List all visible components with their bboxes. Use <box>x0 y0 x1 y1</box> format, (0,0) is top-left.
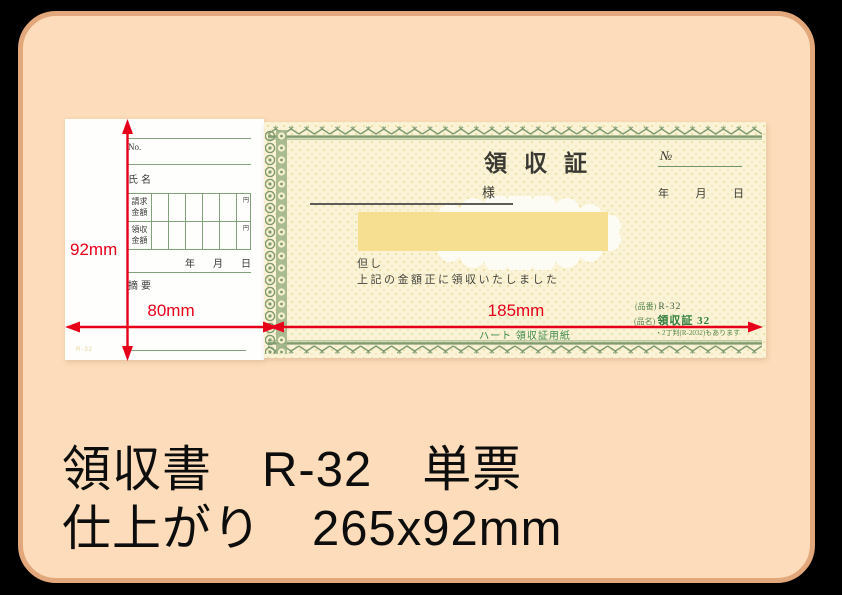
body-width-dimension-label: 185mm <box>476 301 556 321</box>
stub-date-row: 年 月 日 <box>185 255 251 270</box>
yen-unit: 円 <box>243 195 249 204</box>
received-amount-row: 領収金額 円 <box>128 221 250 249</box>
ornamental-top-border <box>268 126 762 141</box>
month-label: 月 <box>213 255 223 270</box>
receipt-statement: 上記の金額正に領収いたしました <box>357 271 560 287</box>
day-label: 日 <box>241 255 251 270</box>
year-label: 年 <box>658 185 669 201</box>
caption-line-2: 仕上がり 265x92mm <box>62 500 562 559</box>
receipt-date-row: 年 月 日 <box>658 185 744 201</box>
product-number: R-32 <box>658 302 681 312</box>
stub-no-label: No. <box>128 142 141 152</box>
stub-rule-top <box>127 138 251 139</box>
amount-table: 請求金額 円 領収金額 円 <box>127 193 251 250</box>
product-note: ・2丁判(R-2032)もあります <box>655 328 740 338</box>
year-label: 年 <box>185 255 195 270</box>
caption-line-1: 領収書 R-32 単票 <box>62 441 562 500</box>
billed-amount-label: 請求金額 <box>128 194 152 221</box>
receipt-title: 領収証 <box>434 144 654 178</box>
received-amount-label: 領収金額 <box>128 222 152 249</box>
amount-highlight-box <box>358 212 608 251</box>
product-number-line: (品番) R-32 <box>635 301 681 312</box>
product-name-line: (品名) 領収証 32 <box>634 312 710 328</box>
receipt-body: 領収証 № 様 年 月 日 但し 上記の金額正に領収いたしました ハート 領収証… <box>264 122 766 358</box>
stub-memo-label: 摘要 <box>128 277 154 292</box>
month-label: 月 <box>696 185 707 201</box>
receipt-no-symbol: № <box>660 148 672 164</box>
page: No. 氏名 請求金額 円 領収金額 <box>0 0 842 595</box>
proviso-label: 但し <box>357 255 383 271</box>
product-name: 領収証 32 <box>657 315 710 327</box>
addressee-underline <box>310 203 513 205</box>
day-label: 日 <box>733 185 744 201</box>
receipt-no-underline <box>658 166 742 167</box>
stub-rule-2 <box>127 164 251 165</box>
product-caption: 領収書 R-32 単票 仕上がり 265x92mm <box>62 441 562 559</box>
yen-unit: 円 <box>243 223 249 232</box>
billed-amount-row: 請求金額 円 <box>128 194 250 221</box>
product-number-label: (品番) <box>635 302 656 311</box>
stub-rule-3 <box>127 272 251 273</box>
addressee-suffix: 様 <box>482 182 495 201</box>
product-name-label: (品名) <box>634 317 655 326</box>
stub-name-label: 氏名 <box>128 171 154 186</box>
stub-corner-code: R-32 <box>76 347 93 353</box>
ornamental-perforation-edge <box>265 130 289 354</box>
stub-rule-bottom <box>127 350 246 351</box>
height-dimension-label: 92mm <box>70 240 117 260</box>
brand-line: ハート 領収証用紙 <box>460 327 590 342</box>
stub-width-dimension-label: 80mm <box>131 301 211 321</box>
